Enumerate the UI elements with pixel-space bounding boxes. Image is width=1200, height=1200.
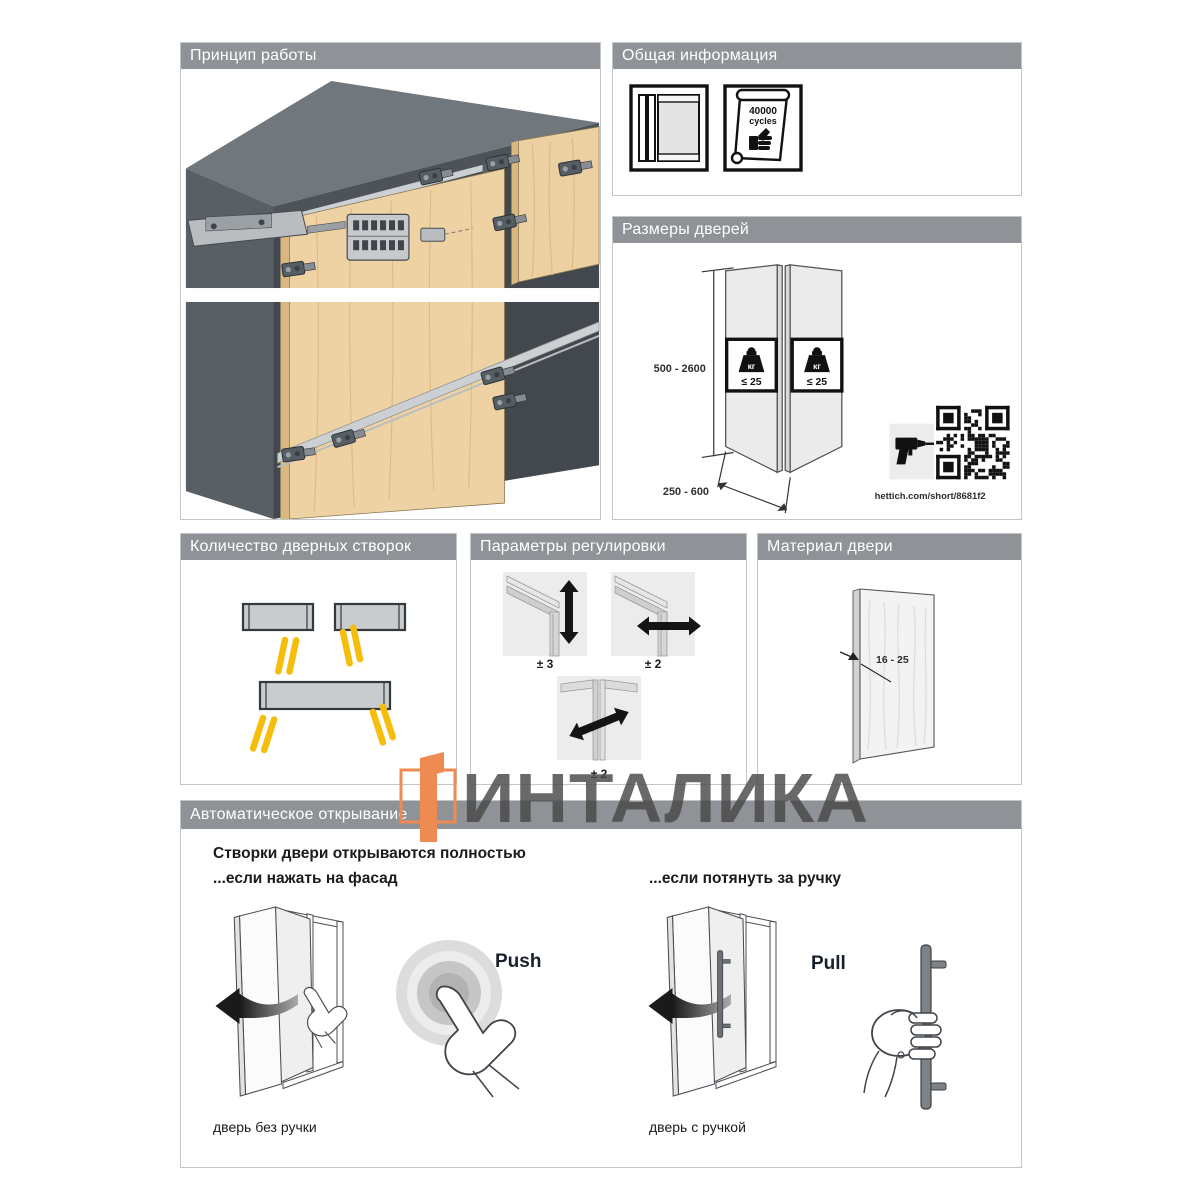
panel-count-header: Количество дверных створок <box>181 534 456 560</box>
cycles-scroll-icon: 40000 cycles <box>725 86 801 170</box>
panel-adjust-header: Параметры регулировки <box>471 534 746 560</box>
panel-title: Принцип работы <box>190 47 317 64</box>
panel-material-header: Материал двери <box>758 534 1021 560</box>
cabinet-illustration <box>181 69 600 519</box>
pull-label: Pull <box>811 953 846 974</box>
panel-adjust: Параметры регулировки <box>470 533 747 785</box>
door-panel <box>853 589 934 763</box>
general-info-icons: 40000 cycles <box>613 69 1021 195</box>
width-range-label: 250 - 600 <box>663 486 709 498</box>
qr-code <box>934 404 1011 481</box>
panel-title: Автоматическое открывание <box>190 806 408 823</box>
panel-material: Материал двери 16 - 25 <box>757 533 1022 785</box>
corner-diagram-vertical <box>503 572 587 656</box>
door-leaf-wide <box>260 682 390 709</box>
gap-diagram-depth <box>557 676 641 760</box>
hinge-marks-top <box>278 628 360 674</box>
adjust-value-vertical: ± 3 <box>537 657 554 671</box>
door-leaf-top-left <box>243 604 313 630</box>
folding-door-icon <box>631 86 707 170</box>
panel-general-header: Общая информация <box>613 43 1021 69</box>
push-label: Push <box>495 951 541 972</box>
adjustment-diagram: ± 3 ± 2 ± 2 <box>471 560 746 784</box>
panel-title: Параметры регулировки <box>480 538 666 555</box>
push-graphic: Push <box>371 929 571 1099</box>
adjust-value-horizontal: ± 2 <box>645 657 662 671</box>
page-band <box>182 288 599 302</box>
weight-badge: кг ≤ 25 <box>727 339 777 391</box>
panel-title: Размеры дверей <box>622 221 749 238</box>
pull-graphic: Pull <box>803 937 983 1117</box>
door-sizes-diagram: 500 - 2600 250 - 600 кг ≤ 25 <box>613 243 1021 519</box>
folding-door-push-illustration <box>211 904 361 1099</box>
panel-principle: Принцип работы <box>180 42 601 520</box>
panel-general: Общая информация 4 <box>612 42 1022 196</box>
cycles-unit: cycles <box>749 116 777 126</box>
hinge-marks-bottom <box>253 707 393 752</box>
panel-sizes: Размеры дверей 500 - 2600 <box>612 216 1022 520</box>
panel-sizes-header: Размеры дверей <box>613 217 1021 243</box>
panel-count: Количество дверных створок <box>180 533 457 785</box>
auto-pull-intro: ...если потянуть за ручку <box>649 870 841 888</box>
material-diagram: 16 - 25 <box>758 560 1021 784</box>
intalika-watermark: ИНТАЛИКА <box>462 758 869 838</box>
height-range-label: 500 - 2600 <box>654 363 706 375</box>
panel-title: Количество дверных створок <box>190 538 411 555</box>
drill-icon <box>889 424 935 480</box>
panel-title: Материал двери <box>767 538 893 555</box>
weight-badge: кг ≤ 25 <box>792 339 842 391</box>
door-leaf-top-right <box>335 604 405 630</box>
qr-link: hettich.com/short/8681f2 <box>875 490 986 501</box>
weight-unit-label: кг <box>748 361 756 371</box>
folding-door-right <box>511 127 599 285</box>
thickness-label: 16 - 25 <box>876 654 909 666</box>
folding-door-pull-illustration <box>644 904 794 1099</box>
weight-limit-label: ≤ 25 <box>807 377 827 388</box>
caption-no-handle: дверь без ручки <box>213 1119 317 1135</box>
instruction-sheet: Принцип работы <box>0 0 1200 1200</box>
corner-diagram-horizontal <box>611 572 695 656</box>
caption-handle: дверь с ручкой <box>649 1119 746 1135</box>
panel-principle-header: Принцип работы <box>181 43 600 69</box>
weight-unit-label: кг <box>813 361 821 371</box>
intalika-logo-icon <box>398 750 488 855</box>
auto-intro-line2: ...если нажать на фасад <box>213 870 398 888</box>
panel-title: Общая информация <box>622 47 777 64</box>
panel-auto: Автоматическое открывание Створки двери … <box>180 800 1022 1168</box>
weight-limit-label: ≤ 25 <box>741 377 761 388</box>
